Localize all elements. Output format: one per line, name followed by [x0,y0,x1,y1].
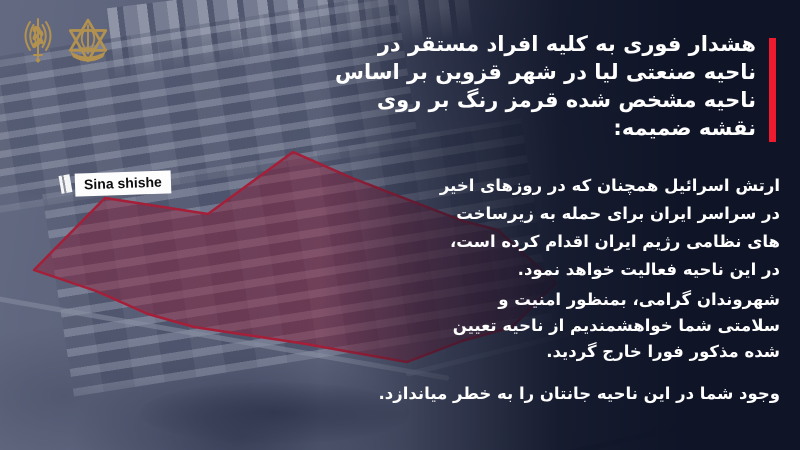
warning-paragraph-2: شهروندان گرامی، بمنظور امنیت و سلامتی شم… [379,287,780,365]
logo-row [18,10,112,66]
body-line: وجود شما در این ناحیه جانتان را به خطر م… [379,381,780,407]
heading-line: نقشه ضمیمه: [335,114,756,142]
heading-accent-bar [769,38,776,142]
warning-heading: هشدار فوری به کلیه افراد مستقر در ناحیه … [335,30,756,142]
evacuation-warning-poster: Sina shishe هشدار فوری به کلیه افراد مست… [0,0,800,450]
body-line: سلامتی شما خواهشمندیم از ناحیه تعیین [379,313,780,339]
map-label-sina-shishe: Sina shishe [60,172,171,195]
body-line: در سراسر ایران برای حمله به زیرساخت [379,200,780,228]
body-line: ارتش اسرائیل همچنان که در روزهای اخیر [379,172,780,200]
warning-paragraph-3: وجود شما در این ناحیه جانتان را به خطر م… [379,381,780,407]
body-line: شهروندان گرامی، بمنظور امنیت و [379,287,780,313]
map-label-text: Sina shishe [75,170,172,196]
idf-spokesperson-emblem-icon [18,10,58,64]
idf-emblem-icon [64,18,112,66]
warning-paragraph-1: ارتش اسرائیل همچنان که در روزهای اخیر در… [379,172,780,284]
warning-text-block: هشدار فوری به کلیه افراد مستقر در ناحیه … [360,0,800,450]
body-line: های نظامی رژیم ایران اقدام کرده است، [379,228,780,256]
warning-body: ارتش اسرائیل همچنان که در روزهای اخیر در… [379,172,780,407]
heading-line: هشدار فوری به کلیه افراد مستقر در [335,30,756,58]
heading-line: ناحیه صنعتی لیا در شهر قزوین بر اساس [335,58,756,86]
body-line: شده مذکور فورا خارج گردید. [379,339,780,365]
body-line: در این ناحیه فعالیت خواهد نمود. [379,256,780,284]
map-marker-icon [59,174,73,194]
heading-line: ناحیه مشخص شده قرمز رنگ بر روی [335,86,756,114]
